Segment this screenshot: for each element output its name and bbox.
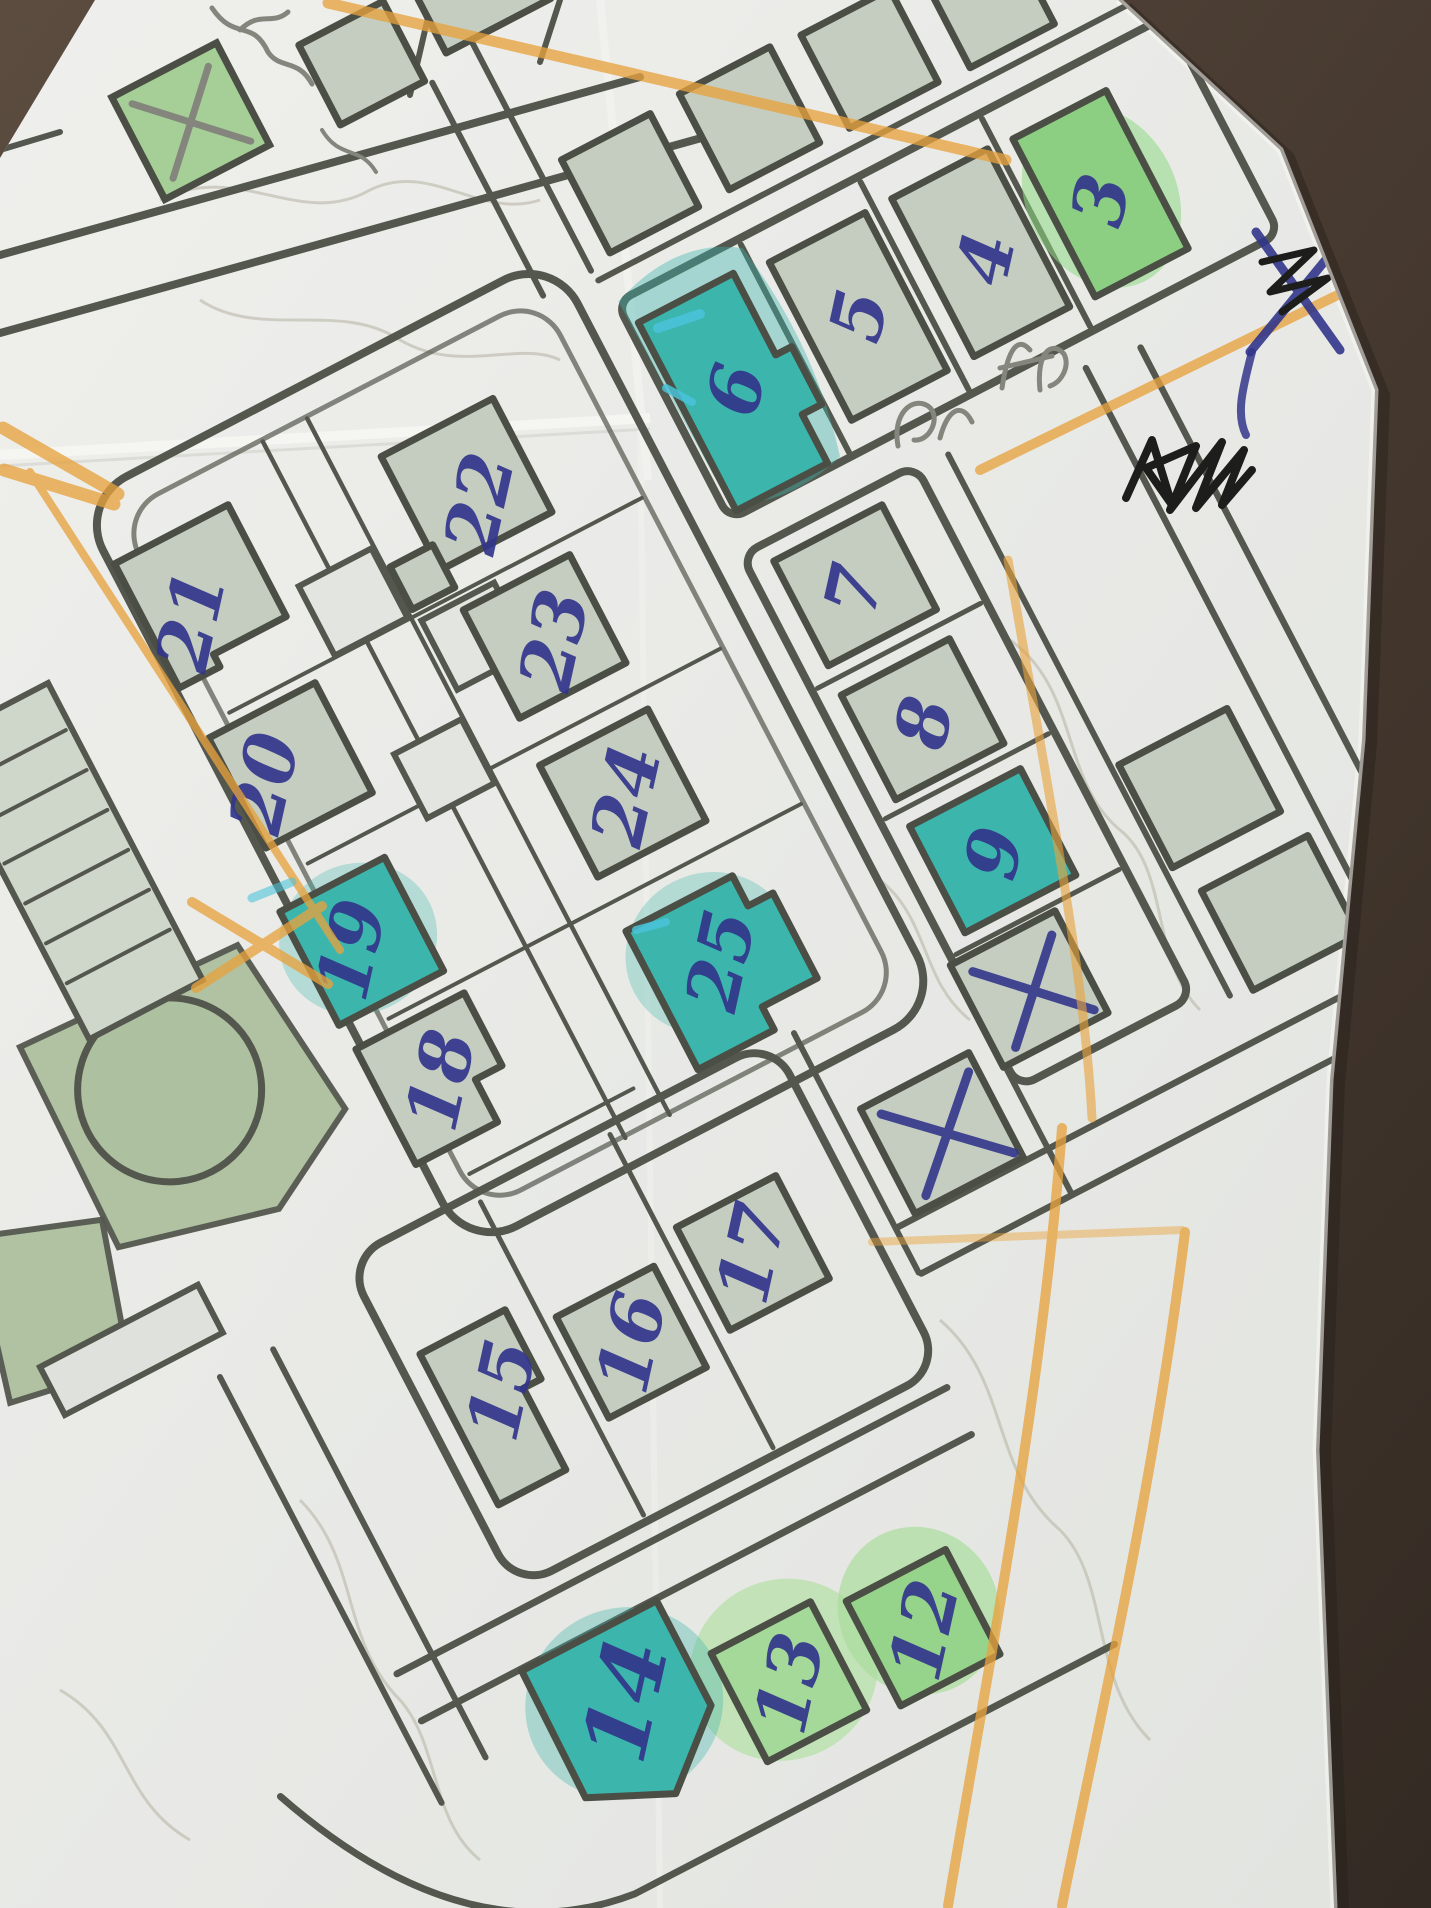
photo-of-paper-map: 3 4 5 6 7 8 9 xyxy=(0,0,1431,1908)
map-photo-svg: 3 4 5 6 7 8 9 xyxy=(0,0,1431,1908)
